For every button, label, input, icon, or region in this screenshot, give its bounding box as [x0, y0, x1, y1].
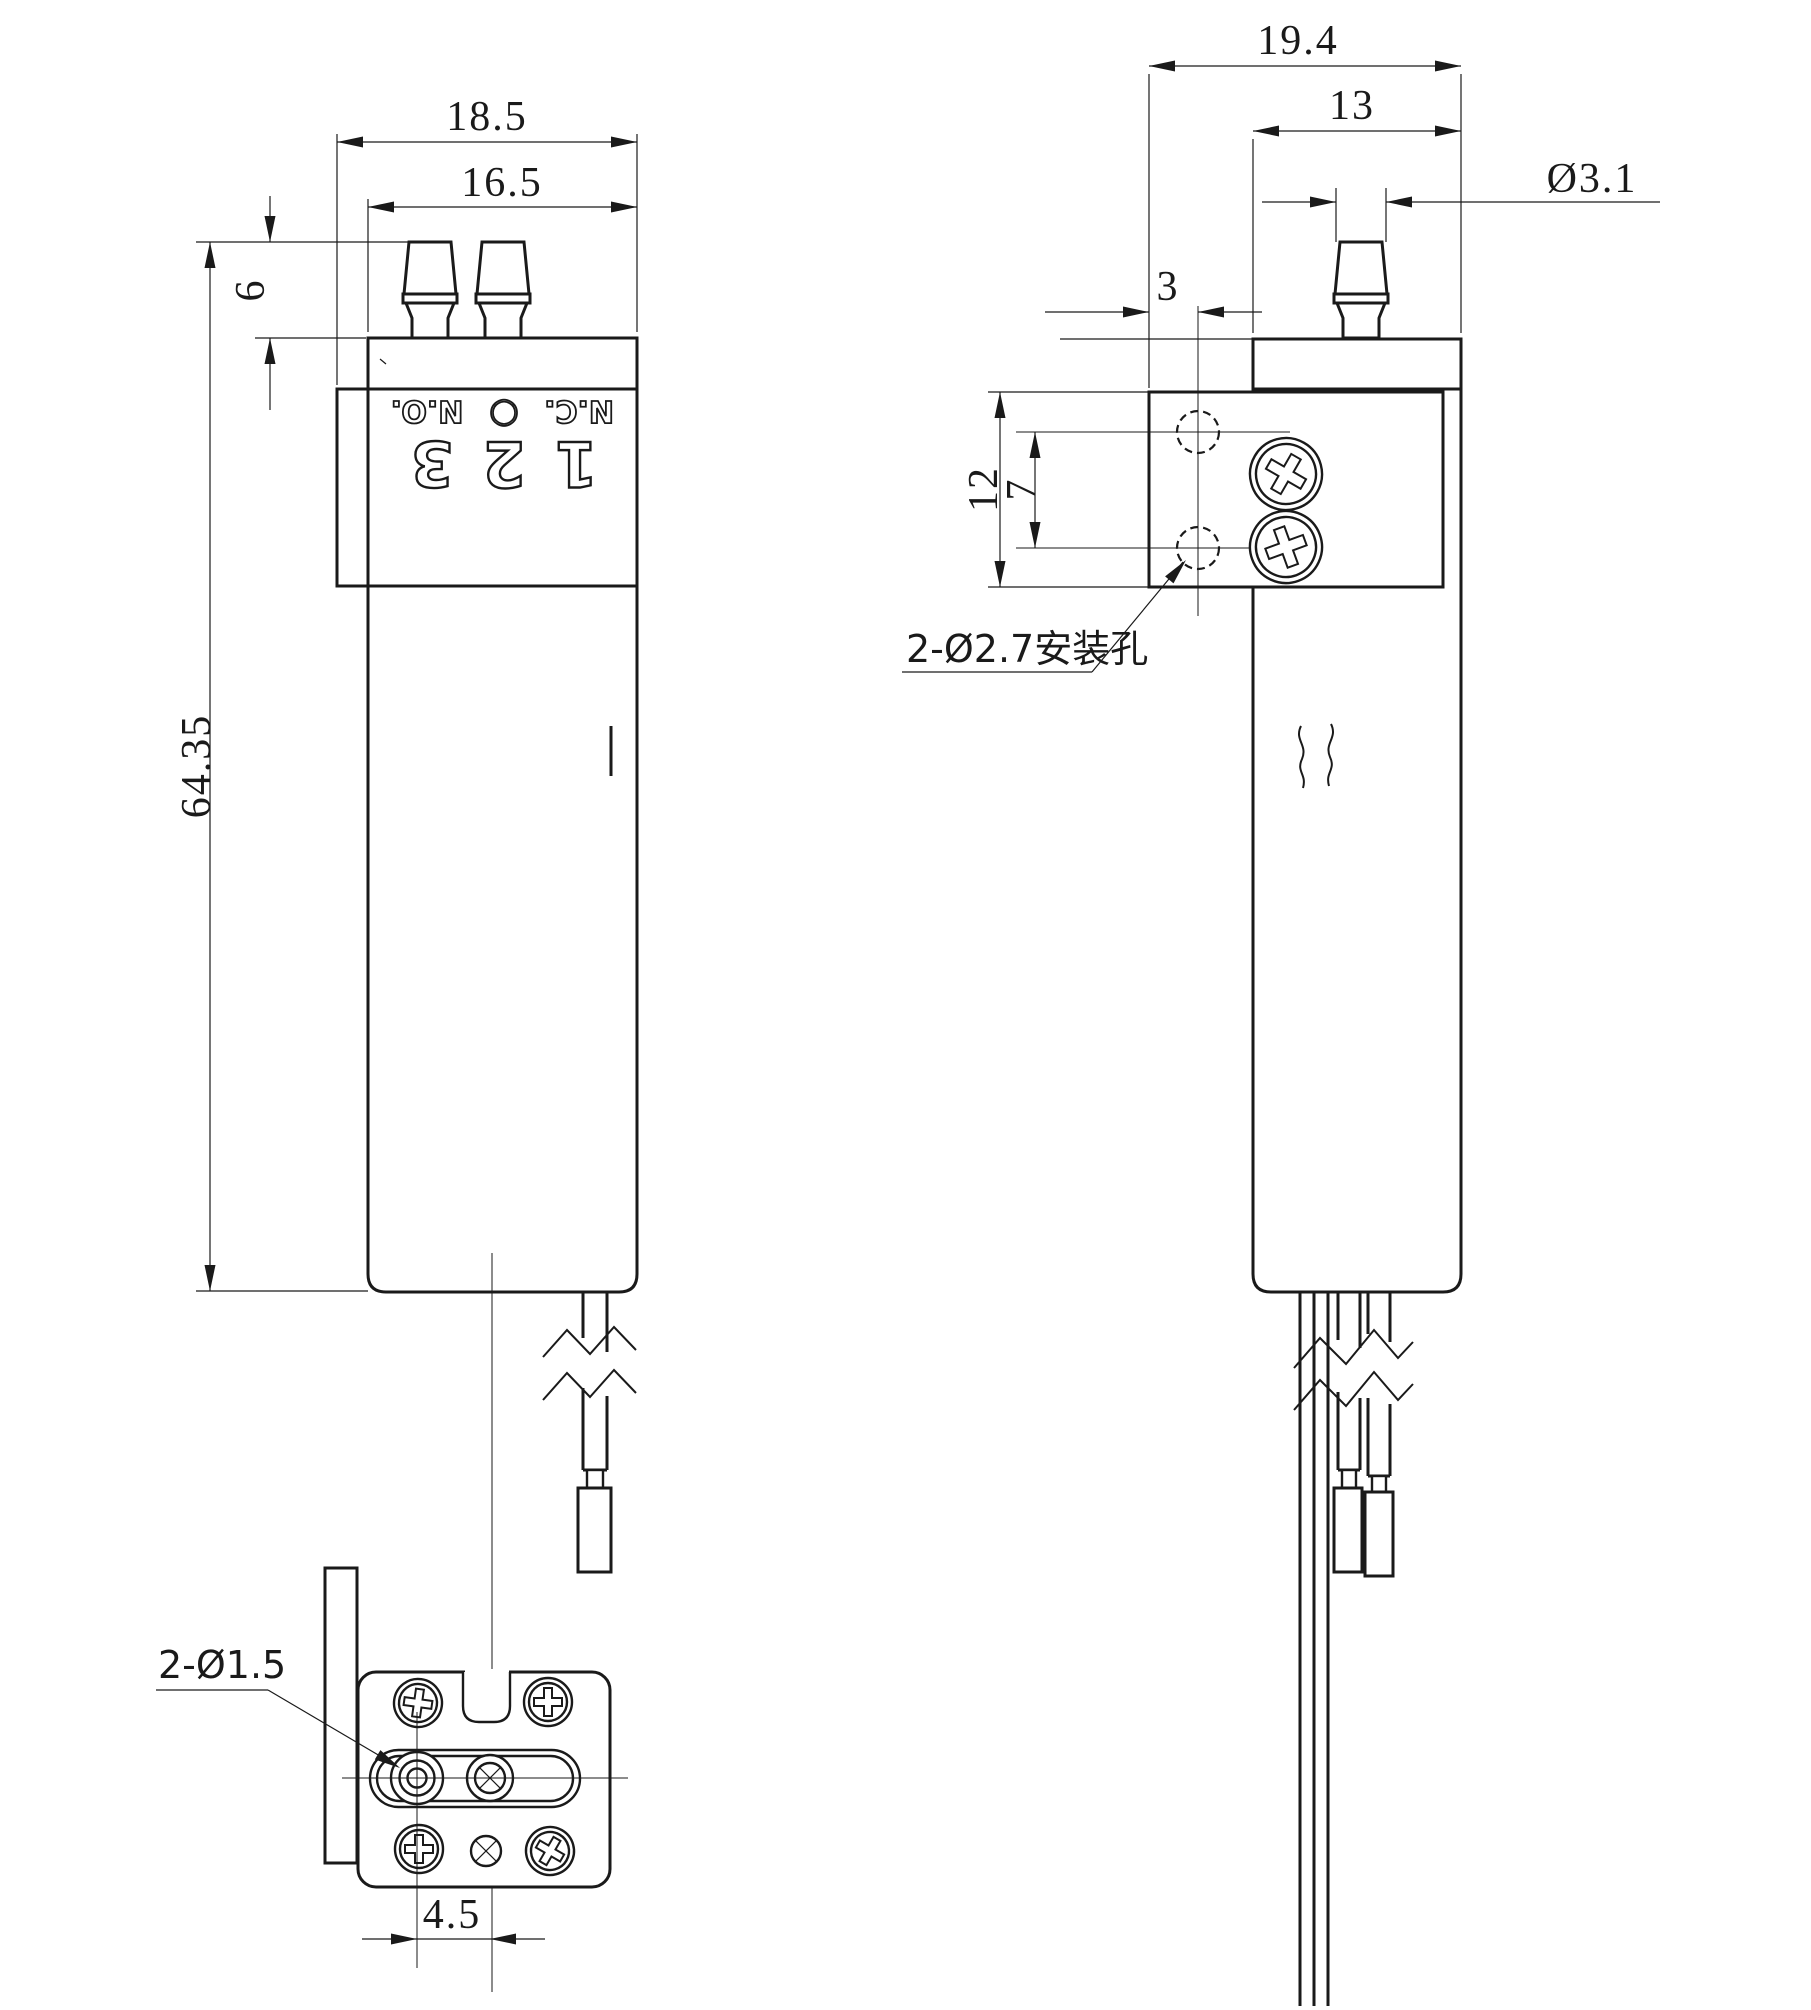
pin-neck	[587, 1470, 603, 1488]
front-top-plate	[368, 338, 637, 389]
dim-nipple-height: 6	[228, 279, 274, 302]
note-ports: 2-Ø1.5	[158, 1643, 286, 1687]
dim-total-height: 64.35	[174, 714, 220, 819]
barb-fitting-right-icon	[476, 242, 530, 338]
body-notch	[463, 1672, 510, 1722]
phillips-screw-icon	[524, 1678, 572, 1726]
terminal-pin	[1365, 1492, 1393, 1576]
bottom-bracket-strip	[325, 1568, 357, 1863]
dim-outer-width: 18.5	[446, 94, 528, 140]
side-lead-wires	[1294, 1292, 1413, 2006]
terminal-pin	[1334, 1488, 1362, 1572]
dim-port-pitch: 4.5	[423, 1892, 482, 1938]
break-symbol	[543, 1327, 636, 1357]
bottom-view: 2-Ø1.5 4.5	[156, 1568, 628, 1968]
barb-fitting-side-icon	[1334, 242, 1388, 338]
bottom-dimensions: 4.5	[362, 1892, 545, 1945]
terminal-1-tag: N.C.	[544, 393, 614, 428]
dim-barb-diameter: Ø3.1	[1547, 156, 1638, 202]
phillips-screw-icon	[395, 1825, 443, 1873]
barb-fitting-left-icon	[403, 242, 457, 338]
vent-hole-icon	[471, 1836, 501, 1866]
terminal-pin	[578, 1488, 611, 1572]
valve-technical-drawing: 3 N.O. 2 ○ 1 N.C.	[0, 0, 1811, 2010]
terminal-2-number: 2	[482, 427, 525, 500]
break-symbol	[543, 1370, 636, 1400]
dim-hole-face-offset: 3	[1157, 264, 1180, 310]
dim-outer-depth: 19.4	[1257, 18, 1339, 64]
note-mounting-holes: 2-Ø2.7安装孔	[906, 627, 1148, 671]
terminal-markings: 3 N.O. 2 ○ 1 N.C.	[391, 393, 614, 500]
front-body-outline	[368, 586, 637, 1292]
dim-plate-width: 16.5	[461, 160, 543, 206]
side-view: 19.4 13 Ø3.1 3	[902, 18, 1660, 2006]
dim-hole-pitch: 7	[999, 478, 1045, 501]
front-lead-wire	[543, 1292, 636, 1572]
break-symbol	[1294, 1372, 1413, 1410]
drawing-sheet: 3 N.O. 2 ○ 1 N.C.	[0, 0, 1811, 2010]
pin-neck	[1342, 1470, 1356, 1488]
dim-body-depth: 13	[1329, 83, 1375, 129]
break-symbol	[1294, 1330, 1413, 1368]
terminal-3-tag: N.O.	[391, 393, 464, 428]
terminal-3-number: 3	[410, 427, 453, 500]
pin-neck	[1372, 1476, 1386, 1492]
terminal-1-number: 1	[554, 427, 597, 500]
front-bracket-tab	[337, 389, 368, 586]
terminal-2-ring-symbol: ○	[489, 395, 519, 435]
side-top-plate	[1253, 339, 1461, 389]
